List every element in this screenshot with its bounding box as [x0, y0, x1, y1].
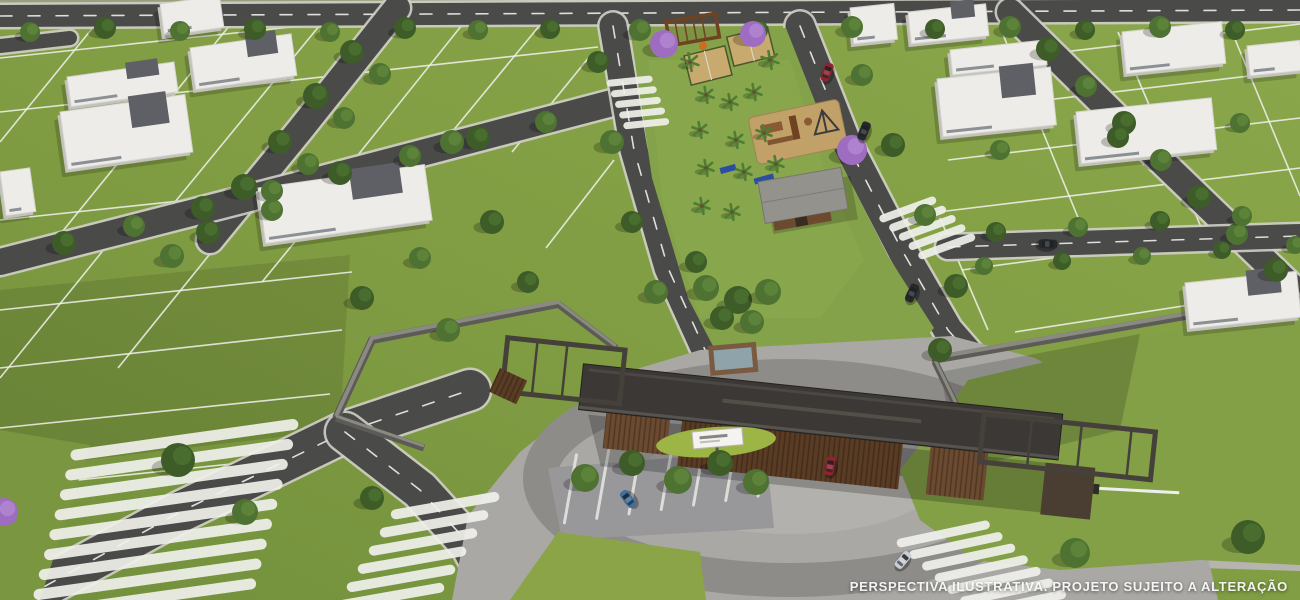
house	[1240, 40, 1300, 83]
reflecting-pool	[708, 342, 758, 376]
aerial-render-stage: PERSPECTIVA ILUSTRATIVA. PROJETO SUJEITO…	[0, 0, 1300, 600]
play-house	[699, 42, 707, 50]
house-upper-volume	[128, 91, 170, 128]
barrier-post	[1093, 484, 1100, 495]
house-upper-volume	[950, 0, 975, 19]
house-upper-volume	[999, 63, 1036, 98]
aerial-render	[0, 0, 1300, 600]
pool-water	[713, 347, 753, 370]
